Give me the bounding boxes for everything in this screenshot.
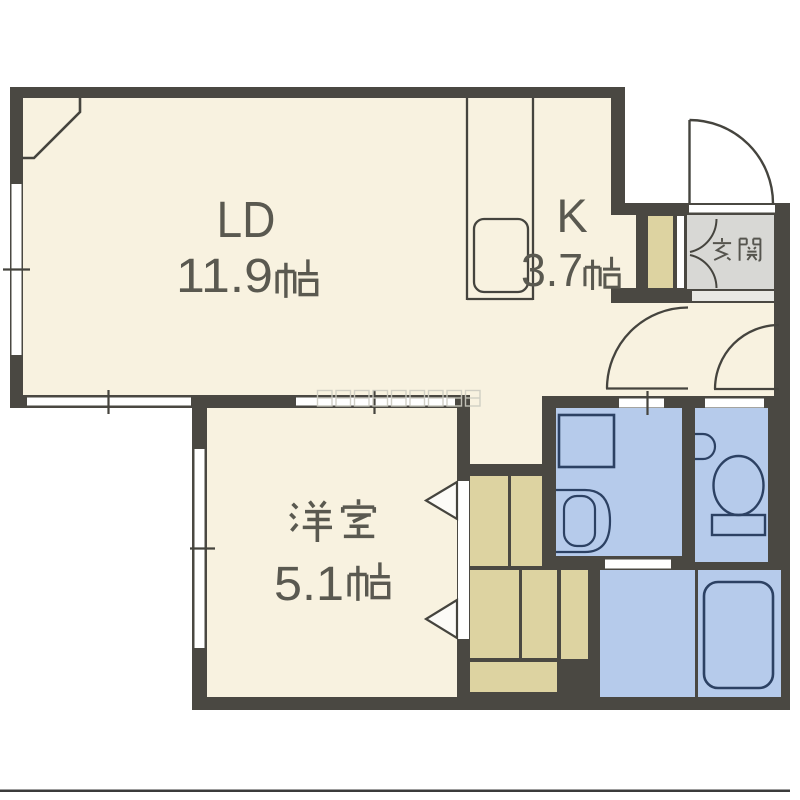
- svg-text:3.7: 3.7: [521, 244, 583, 296]
- svg-text:5.1: 5.1: [274, 558, 344, 611]
- svg-text:K: K: [556, 189, 587, 242]
- svg-text:LD: LD: [217, 191, 276, 248]
- svg-text:11.9: 11.9: [176, 250, 273, 303]
